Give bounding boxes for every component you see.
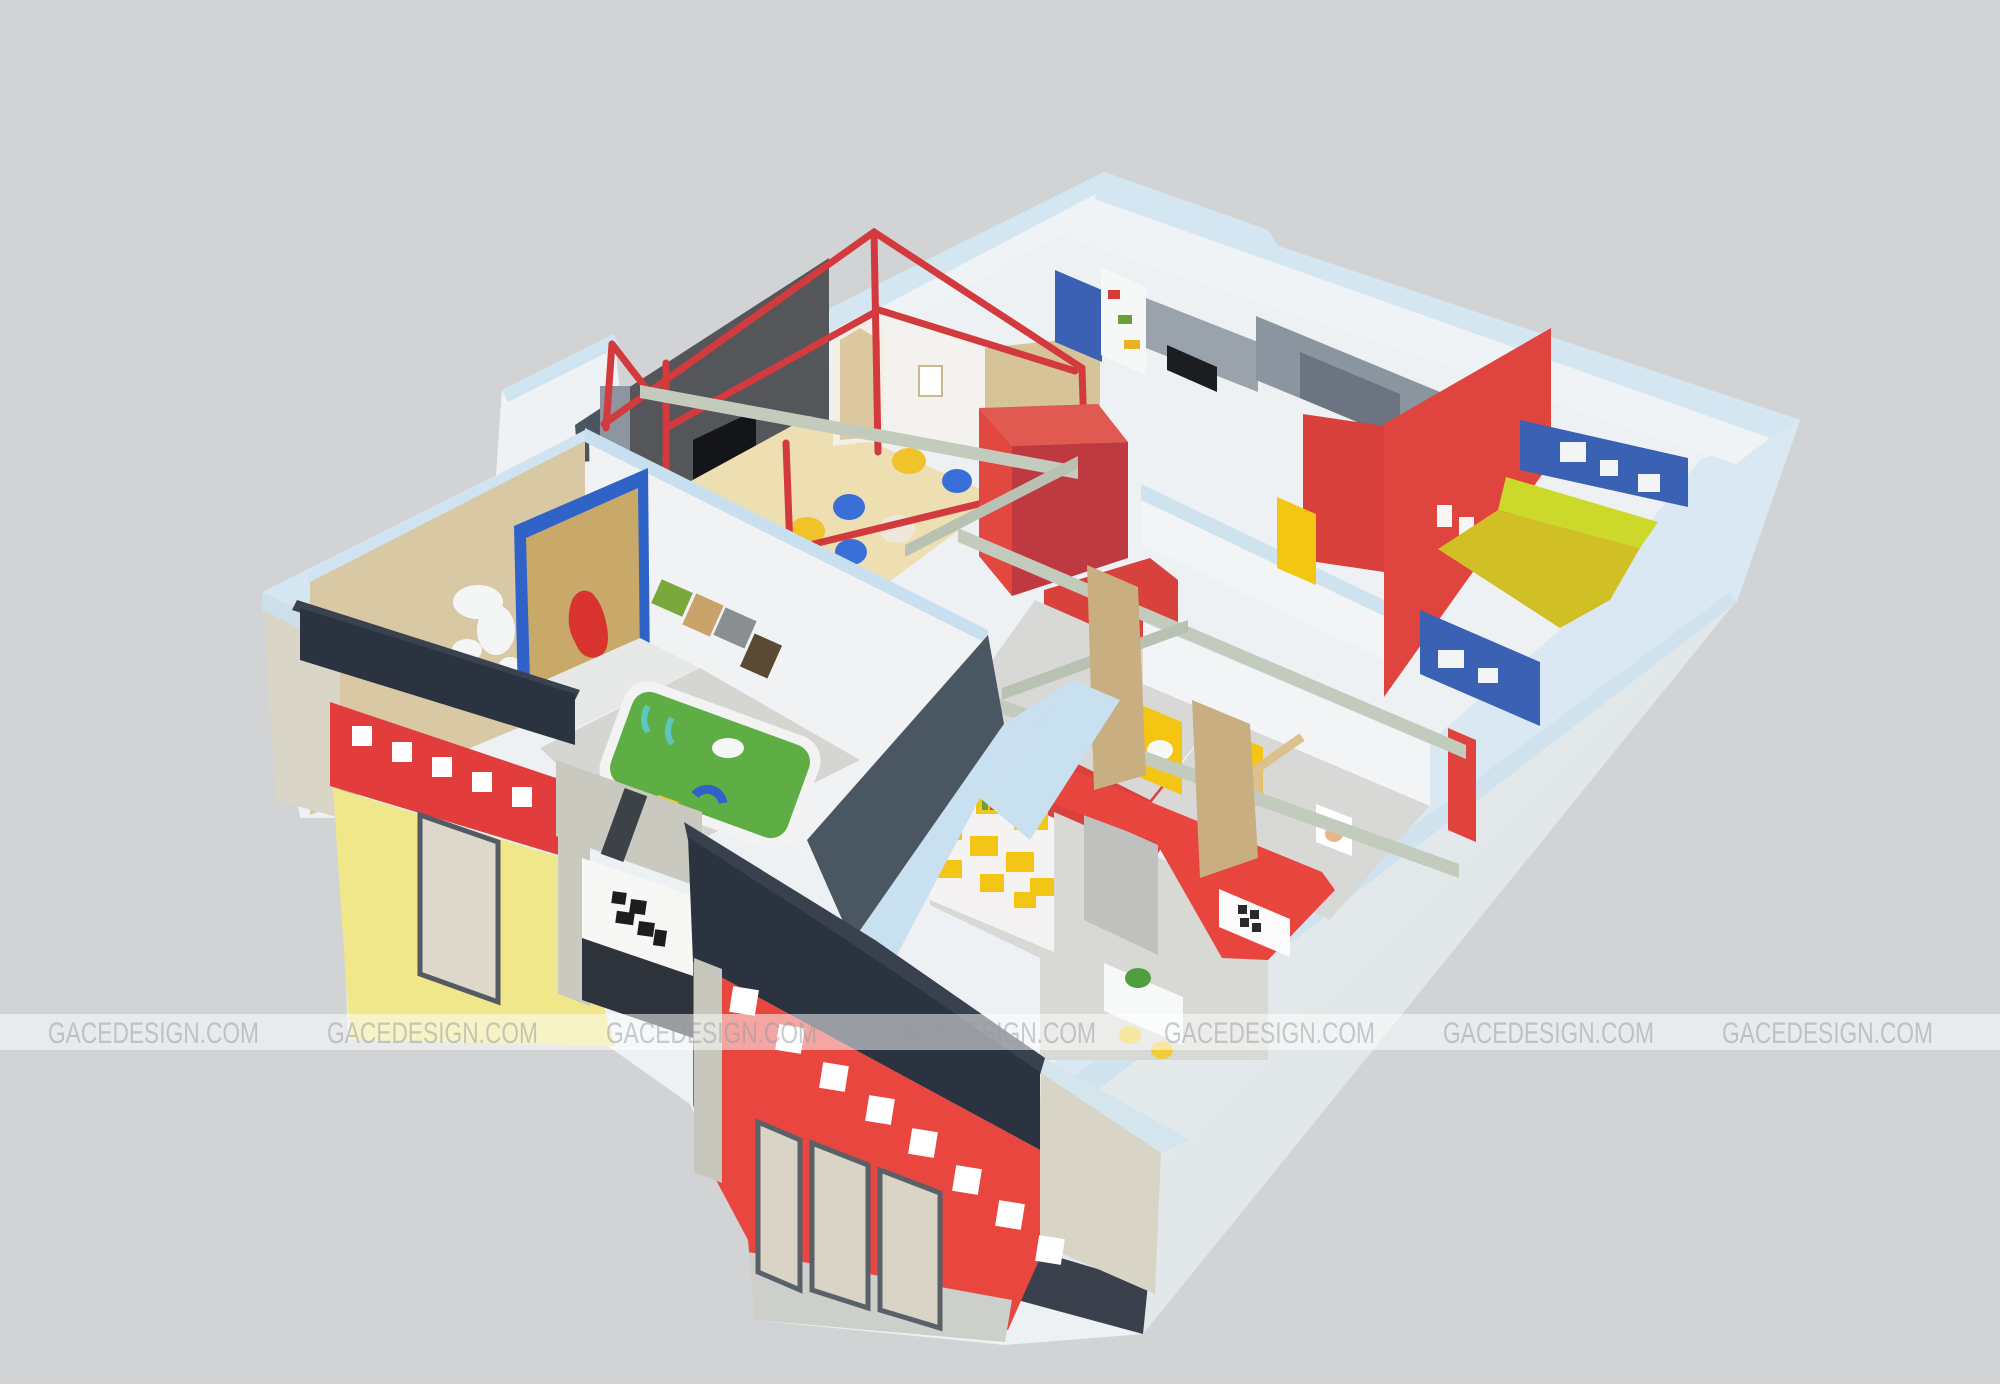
- svg-text:GACEDESIGN.COM: GACEDESIGN.COM: [1722, 1017, 1933, 1050]
- svg-text:GACEDESIGN.COM: GACEDESIGN.COM: [606, 1017, 817, 1050]
- svg-text:GACEDESIGN.COM: GACEDESIGN.COM: [48, 1017, 259, 1050]
- svg-text:GACEDESIGN.COM: GACEDESIGN.COM: [327, 1017, 538, 1050]
- svg-text:GACEDESIGN.COM: GACEDESIGN.COM: [1443, 1017, 1654, 1050]
- svg-text:GACEDESIGN.COM: GACEDESIGN.COM: [885, 1017, 1096, 1050]
- svg-text:GACEDESIGN.COM: GACEDESIGN.COM: [1164, 1017, 1375, 1050]
